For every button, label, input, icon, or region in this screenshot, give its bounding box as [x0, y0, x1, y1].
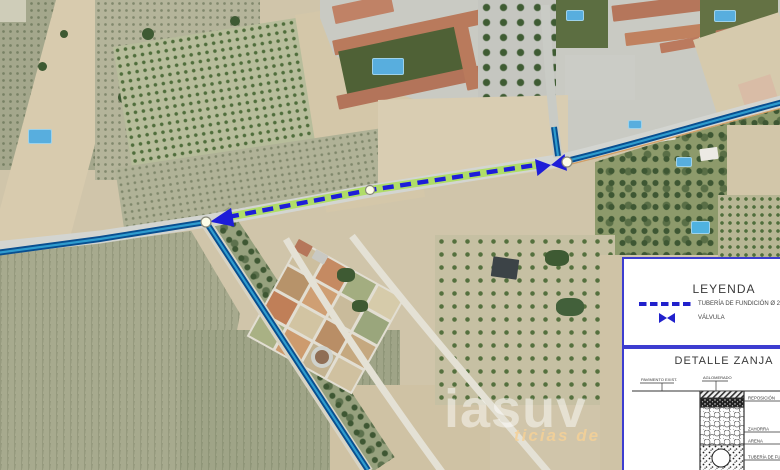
legend-title: LEYENDA	[624, 282, 780, 296]
trench-base-layer	[700, 398, 744, 407]
junction-node	[201, 217, 211, 227]
junction-node	[366, 186, 375, 195]
trench-label-right3: ARENA	[748, 439, 763, 444]
trench-pipe	[712, 449, 730, 467]
trench-label-right1: REPOSICIÓN	[748, 396, 775, 401]
junction-node	[562, 157, 572, 167]
trench-diagram: PAVIMENTO EXIST. AGLOMERADO REPOSICIÓN Z…	[624, 367, 780, 470]
trench-detail-panel: DETALLE ZANJA	[622, 347, 780, 470]
legend-panel: LEYENDA TUBERÍA DE FUNDICIÓN Ø 2 VÁLVULA	[622, 257, 780, 347]
dashed-line-swatch	[639, 302, 692, 306]
leader-line	[640, 383, 674, 391]
new-pipe-dashed-line	[228, 165, 536, 217]
legend-item-pipe-label: TUBERÍA DE FUNDICIÓN Ø 2	[698, 301, 780, 307]
trench-label-right2: ZAHORRA	[748, 427, 769, 432]
trench-label-topright: AGLOMERADO	[703, 375, 732, 380]
leader-line	[702, 381, 728, 391]
legend-item-valve-label: VÁLVULA	[698, 315, 725, 321]
watermark-tagline: ticias de	[514, 426, 600, 446]
main-road	[0, 101, 780, 248]
valve-icon	[658, 312, 676, 324]
trench-gravel-layer	[700, 407, 744, 445]
trench-asphalt-layer	[700, 391, 744, 398]
trench-label-topleft: PAVIMENTO EXIST.	[641, 377, 677, 382]
trench-label-right4: TUBERÍA DE FUNDICIÓN	[748, 455, 780, 460]
street-b	[286, 239, 442, 470]
trench-detail-title: DETALLE ZANJA	[624, 355, 780, 367]
screenshot-stage: iasuv ticias de LEYENDA TUBERÍA DE FUNDI…	[0, 0, 780, 470]
